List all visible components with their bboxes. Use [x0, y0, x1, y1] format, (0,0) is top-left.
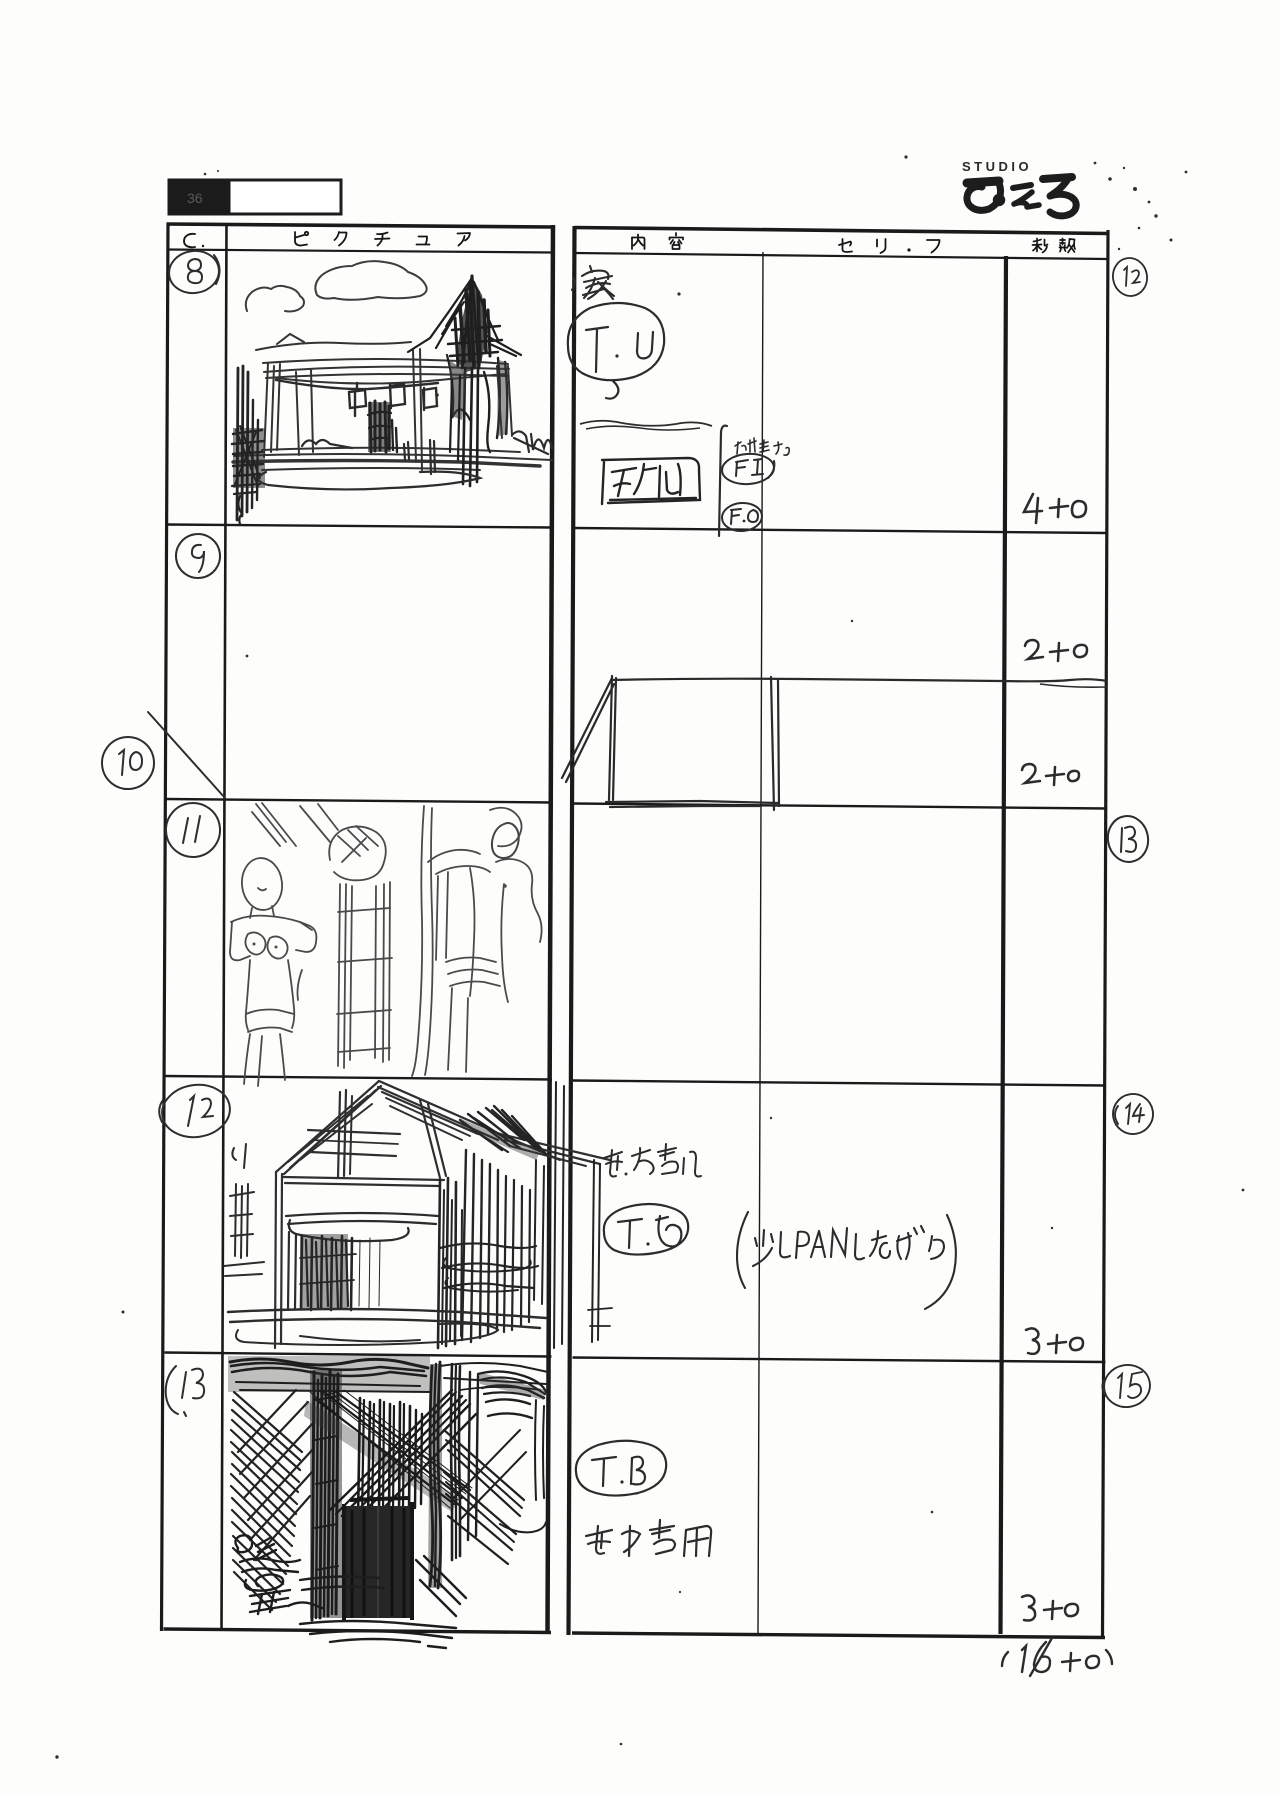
svg-text:STUDIO: STUDIO: [962, 159, 1032, 174]
svg-text:36: 36: [187, 190, 203, 206]
